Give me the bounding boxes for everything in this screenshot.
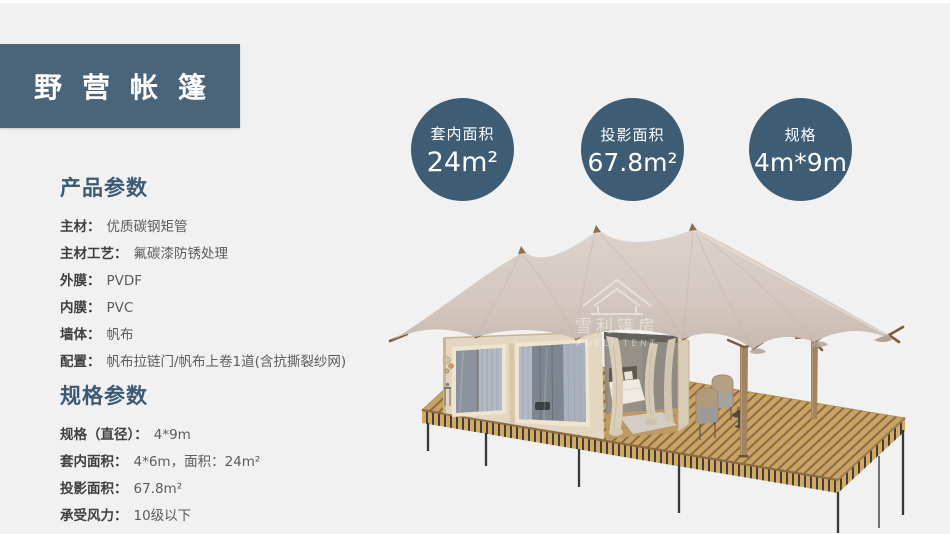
param-label: 外膜： xyxy=(60,273,101,289)
badge-label: 规格 xyxy=(784,124,816,145)
param-label: 规格（直径）： xyxy=(60,427,148,443)
param-value: 氟碳漆防锈处理 xyxy=(134,246,229,262)
section-heading: 产品参数 xyxy=(60,172,430,202)
badge-label: 套内面积 xyxy=(430,123,494,144)
param-value: PVDF xyxy=(107,273,143,289)
cabin-end-cap xyxy=(678,336,689,432)
param-value: 4*9m xyxy=(154,427,191,443)
param-row: 套内面积：4*6m，面积：24m² xyxy=(60,449,430,476)
param-row: 墙体：帆布 xyxy=(60,322,430,349)
badge-value: 67.8m² xyxy=(587,150,677,175)
param-row: 主材：优质碳钢矩管 xyxy=(60,214,430,241)
param-value: 4*6m，面积：24m² xyxy=(134,454,261,470)
section-heading: 规格参数 xyxy=(60,380,430,410)
product-spec-page: 野营帐篷 套内面积 24m² 投影面积 67.8m² 规格 4m*9m 产品参数… xyxy=(0,0,950,534)
title-box: 野营帐篷 xyxy=(0,44,240,128)
param-value: PVC xyxy=(107,300,134,316)
watermark-subtitle: XUELI TENT xyxy=(576,339,658,349)
interior-tub xyxy=(535,402,550,410)
param-label: 墙体： xyxy=(60,327,101,343)
param-label: 套内面积： xyxy=(60,454,128,470)
badge-value: 4m*9m xyxy=(754,150,847,175)
page-title: 野营帐篷 xyxy=(14,66,226,106)
param-value: 67.8m² xyxy=(134,481,183,497)
product-params-section: 产品参数 主材：优质碳钢矩管 主材工艺：氟碳漆防锈处理 外膜：PVDF 内膜：P… xyxy=(60,172,430,376)
param-label: 投影面积： xyxy=(60,481,128,497)
param-value: 优质碳钢矩管 xyxy=(107,219,188,235)
spec-params-section: 规格参数 规格（直径）：4*9m 套内面积：4*6m，面积：24m² 投影面积：… xyxy=(60,380,430,530)
param-label: 承受风力： xyxy=(60,508,128,524)
param-row: 投影面积：67.8m² xyxy=(60,476,430,503)
badge-value: 24m² xyxy=(427,149,498,176)
badge-label: 投影面积 xyxy=(600,124,664,145)
param-value: 10级以下 xyxy=(134,508,192,524)
badge-size: 规格 4m*9m xyxy=(749,98,852,201)
param-value: 帆布 xyxy=(107,327,134,343)
param-row: 外膜：PVDF xyxy=(60,268,430,295)
param-row: 主材工艺：氟碳漆防锈处理 xyxy=(60,241,430,268)
param-row: 内膜：PVC xyxy=(60,295,430,322)
window-left xyxy=(452,344,506,417)
badge-projection-area: 投影面积 67.8m² xyxy=(581,98,684,201)
param-row: 规格（直径）：4*9m xyxy=(60,422,430,449)
param-label: 内膜： xyxy=(60,300,101,316)
param-row: 承受风力：10级以下 xyxy=(60,503,430,530)
top-strip xyxy=(0,0,950,3)
watermark-name: 雪利篷房 xyxy=(575,317,659,337)
param-row: 配置：帆布拉链门/帆布上卷1道(含抗撕裂纱网) xyxy=(60,349,430,376)
param-label: 主材工艺： xyxy=(60,246,128,262)
window-right xyxy=(515,339,590,427)
param-label: 主材： xyxy=(60,219,101,235)
param-value: 帆布拉链门/帆布上卷1道(含抗撕裂纱网) xyxy=(107,354,347,370)
param-label: 配置： xyxy=(60,354,101,370)
tent-render-image: 雪利篷房 XUELI TENT xyxy=(380,210,950,534)
